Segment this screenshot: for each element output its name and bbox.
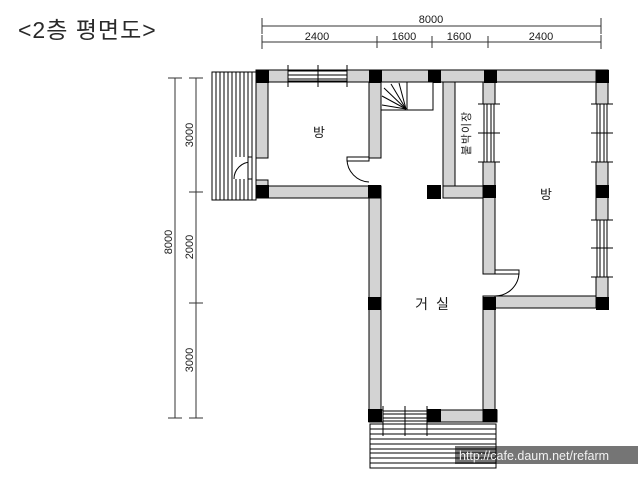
room-left-label: 방	[313, 125, 325, 140]
column	[368, 297, 381, 310]
column	[427, 409, 441, 422]
columns	[256, 70, 609, 422]
column	[484, 70, 497, 83]
top-dimension-labels: 8000 2400 1600 1600 2400	[305, 14, 553, 43]
floor-plan-page: <2층 평면도> 8000 2400 1600 1600 2400 8000 3…	[0, 0, 640, 480]
dim-top-seg-3: 1600	[447, 31, 471, 43]
wall-room-left-bottom	[256, 186, 381, 198]
column	[427, 185, 441, 199]
dim-left-seg-2: 2000	[184, 235, 196, 259]
left-dimension-labels: 8000 3000 2000 3000	[163, 123, 196, 372]
wall-room-right-bottom	[495, 296, 608, 308]
door-leaf	[347, 157, 369, 161]
column	[368, 409, 382, 422]
column	[596, 297, 609, 310]
winder-stairs	[381, 82, 433, 110]
dim-left-seg-1: 3000	[184, 123, 196, 147]
dim-left-total: 8000	[163, 230, 175, 254]
balcony-deck	[212, 72, 256, 200]
column	[596, 70, 609, 83]
dim-top-total: 8000	[419, 14, 443, 26]
wall-shared-c	[483, 296, 495, 422]
door-balcony	[233, 157, 254, 179]
window-closet-wall	[478, 104, 500, 162]
dim-top-seg-1: 2400	[305, 31, 329, 43]
wall-closet-left	[443, 82, 455, 186]
page-title: <2층 평면도>	[18, 17, 157, 43]
wall-shared-b	[483, 162, 495, 274]
walls	[256, 70, 608, 422]
door-room-left	[347, 157, 369, 182]
column	[369, 70, 382, 83]
wall-room-left-right	[369, 82, 381, 158]
column	[483, 409, 497, 422]
door-leaf	[248, 157, 252, 179]
dim-left-seg-3: 3000	[184, 348, 196, 372]
column	[483, 297, 496, 310]
dim-top-seg-4: 2400	[529, 31, 553, 43]
dim-top-seg-2: 1600	[392, 31, 416, 43]
door-leaf	[495, 270, 519, 274]
window-bottom	[383, 406, 427, 436]
watermark-url: http://cafe.daum.net/refarm	[459, 449, 609, 463]
window-top	[288, 65, 347, 87]
column	[428, 70, 441, 83]
window-right-upper	[591, 104, 613, 162]
column	[256, 185, 269, 198]
column	[368, 185, 381, 198]
room-right-label: 방	[540, 187, 552, 202]
wall-shared-a	[483, 82, 495, 104]
living-room-label: 거 실	[415, 296, 451, 312]
column	[596, 185, 609, 198]
floor-plan-drawing: <2층 평면도> 8000 2400 1600 1600 2400 8000 3…	[0, 0, 640, 480]
wall-left-upper	[256, 70, 268, 158]
door-room-right	[495, 270, 519, 296]
closet-label: 붙박이장	[460, 111, 473, 155]
window-right-lower	[591, 220, 613, 277]
column	[256, 70, 269, 83]
column	[483, 185, 496, 198]
